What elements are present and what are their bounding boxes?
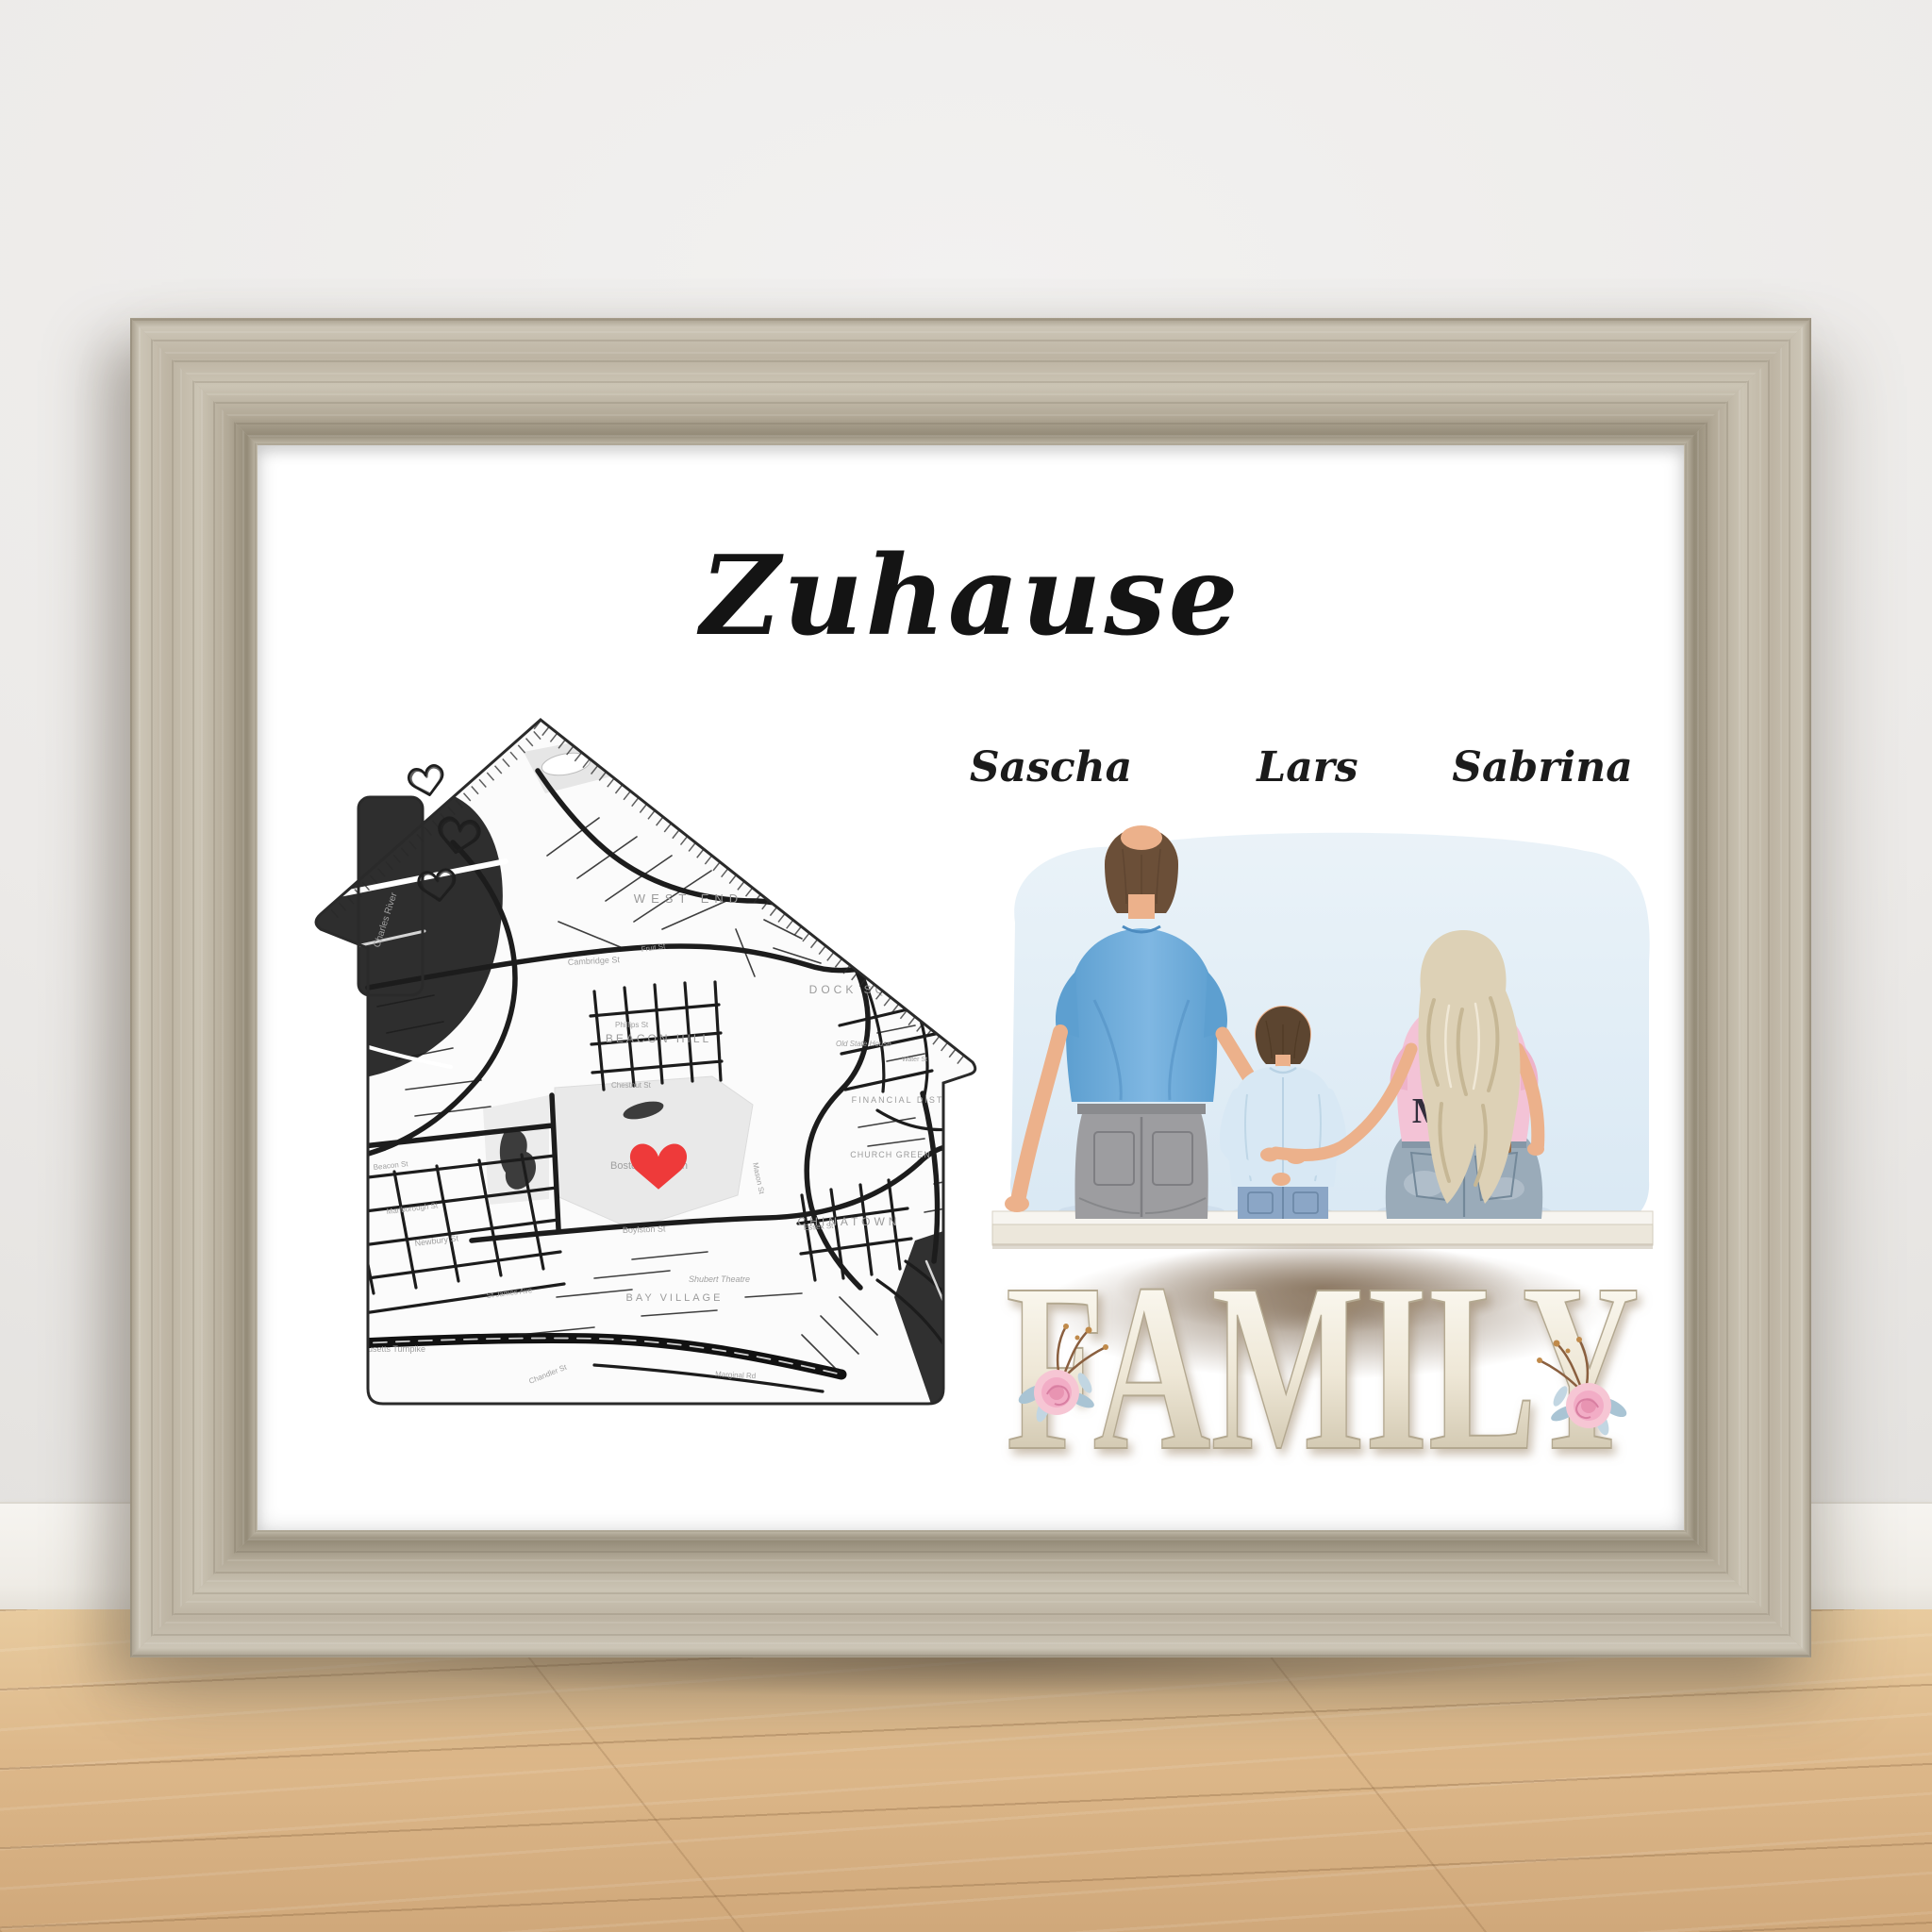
art-print: Zuhause Sascha Lars Sabrina <box>258 445 1684 1530</box>
map-label-dock-square: DOCK SQUARE <box>809 983 935 996</box>
map-label-shubert-theatre: Shubert Theatre <box>689 1274 750 1284</box>
map-label-chestnut-st: Chestnut St <box>611 1081 652 1090</box>
map-label-water-st: Water St <box>902 1057 927 1063</box>
map-label-boylston-st: Boylston St <box>623 1224 666 1235</box>
frame-moulding-top <box>130 318 1811 445</box>
map-label-beacon-hill: BEACON HILL <box>606 1032 711 1045</box>
map-label-west-end: WEST END <box>634 891 743 906</box>
name-son: Lars <box>1204 743 1411 791</box>
map-label-old-state-house: Old State House <box>836 1040 891 1048</box>
family-illustration: MOM FAMILY <box>981 811 1679 1509</box>
map-label-financial-district: FINANCIAL DISTRICT <box>852 1095 972 1105</box>
house-map: WEST END BEACON HILL DOCK SQUARE FINANCI… <box>311 618 991 1410</box>
picture-frame: Zuhause Sascha Lars Sabrina <box>130 318 1811 1657</box>
map-label-phillips-st: Phillips St <box>615 1021 649 1029</box>
family-letters: FAMILY <box>1006 1235 1640 1501</box>
map-label-church-green: CHURCH GREEN <box>850 1150 931 1159</box>
map-label-fort-point-channel: Fort Point Channel <box>942 1298 986 1364</box>
frame-moulding-bottom <box>130 1530 1811 1657</box>
name-mother: Sabrina <box>1439 743 1646 791</box>
scene: Zuhause Sascha Lars Sabrina <box>0 0 1932 1932</box>
frame-moulding-left <box>130 318 258 1657</box>
family-word: FAMILY <box>1006 1235 1640 1501</box>
map-label-bay-village: BAY VILLAGE <box>626 1292 724 1304</box>
frame-moulding-right <box>1684 318 1811 1657</box>
map-label-mass-turnpike: Massachusetts Turnpike <box>334 1344 425 1354</box>
